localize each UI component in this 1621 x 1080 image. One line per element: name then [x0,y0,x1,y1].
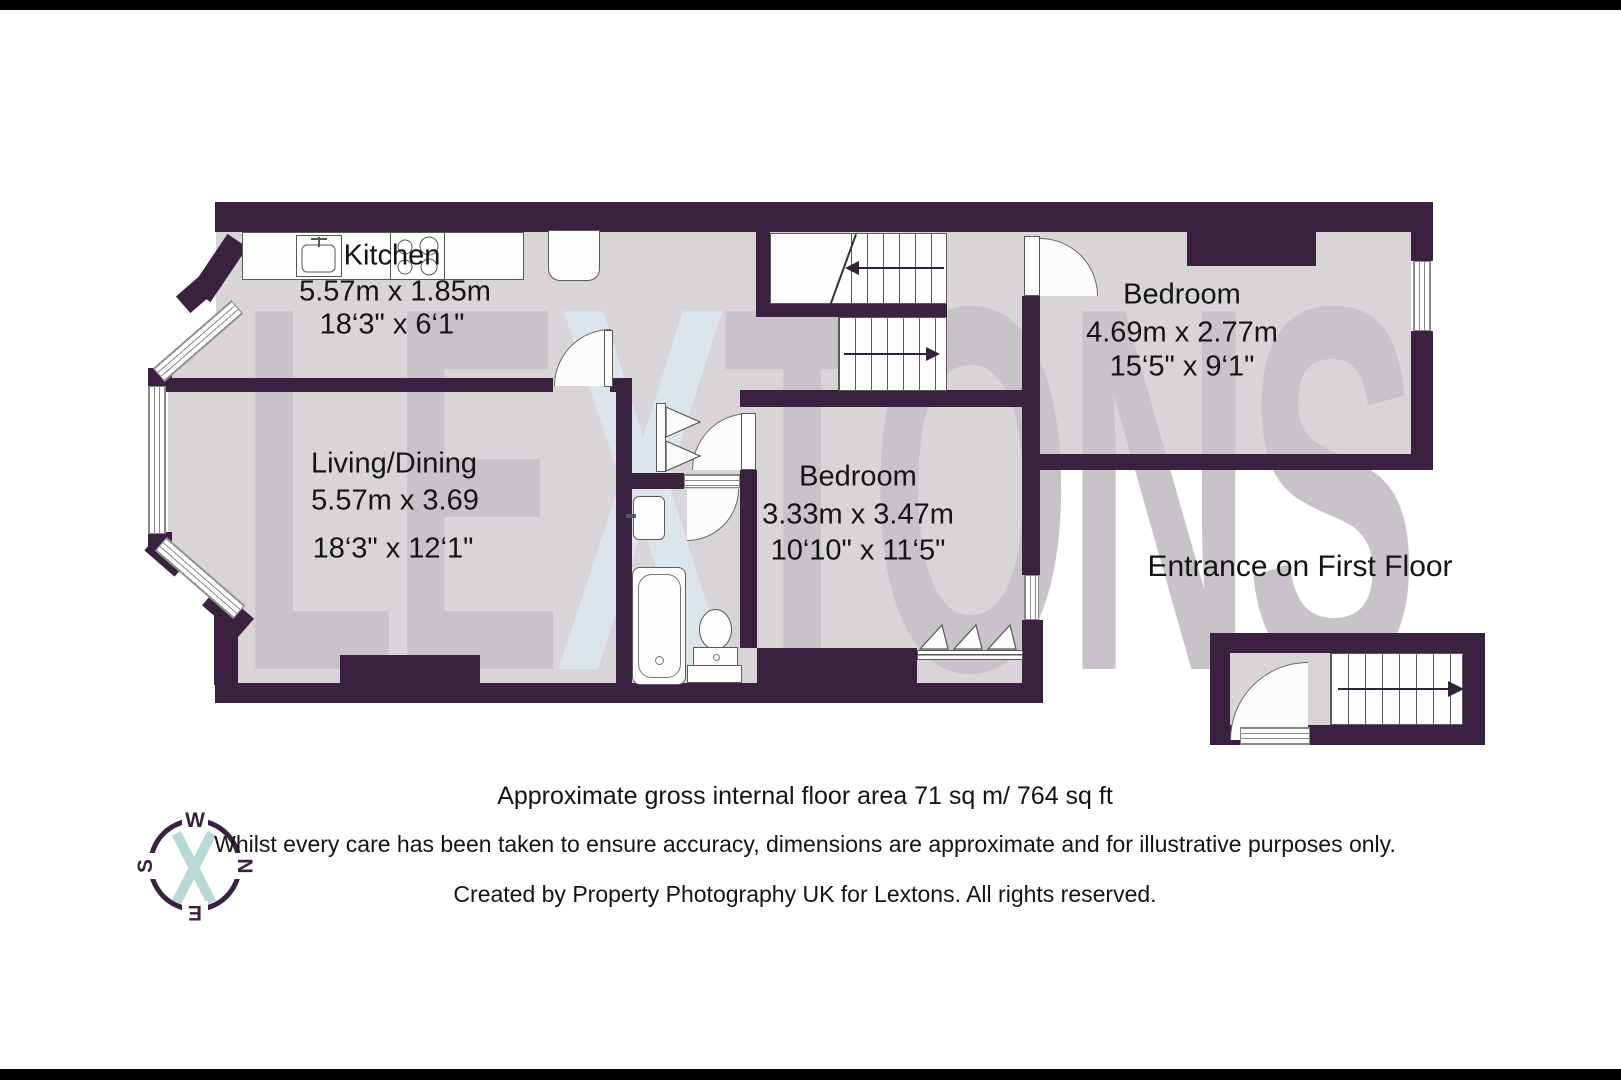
wall-right-bedroom-bottom [1022,454,1433,470]
compass-letter-w: W [185,809,205,833]
top-black-bar [0,0,1621,10]
cupboard-door-strip [656,403,666,472]
right-bedroom-door-leaf [1024,236,1040,296]
mid-bedroom-dims-metric: 3.33m x 3.47m [762,499,954,532]
boiler-icon [548,230,600,281]
right-bedroom-label: Bedroom [1123,279,1241,312]
wall-mid-bedroom-right-upper [1022,470,1040,575]
cupboard-bifold-icon [666,405,704,473]
wall-bottom-mid-bedroom [757,648,917,703]
toilet-tank-icon [693,647,738,666]
footer-credit-text: Created by Property Photography UK for L… [0,881,1610,908]
wall-bottom-left [215,683,757,703]
mid-bedroom-label: Bedroom [799,461,917,494]
bifold-doors-icon [918,622,1022,650]
living-label: Living/Dining [311,448,477,481]
footer-disclaimer-text: Whilst every care has been taken to ensu… [0,831,1610,858]
toilet-icon [699,609,732,650]
wall-right-lower [1411,331,1433,470]
wall-chimney-right-bedroom [1187,232,1316,266]
wall-bathroom-left [616,378,632,683]
entrance-note-label: Entrance on First Floor [1147,550,1452,584]
wall-chimney-living [340,655,480,683]
living-dims-imperial: 18‘3" x 12‘1" [313,533,474,566]
wall-mid-bedroom-left [740,470,757,648]
toilet-plinth [687,665,742,683]
kitchen-door-leaf [604,330,613,387]
bathroom-door-gap [684,474,740,488]
wall-mid-bedroom-right-corner [1022,620,1043,686]
wall-stairwell-left [756,232,770,305]
compass-letter-s: S [134,859,158,873]
living-dims-metric: 5.57m x 3.69 [311,485,479,518]
stairs-down-arrow-line [844,353,926,355]
wall-stairwell-mid [756,303,947,317]
entrance-arrow-line [1338,688,1450,690]
wall-bay-corner-bottom [214,612,238,685]
stairs-up-arrow-head [845,261,859,275]
stairs-up-arrow-line [858,267,944,269]
kitchen-dims-metric: 5.57m x 1.85m [299,276,491,309]
wall-bottom-right [917,683,1043,703]
wall-top [215,202,1433,232]
entrance-arrow-head [1448,681,1464,697]
kitchen-sink-icon [296,235,342,277]
entrance-door-threshold [1240,727,1310,745]
kitchen-dims-imperial: 18‘3" x 6‘1" [320,309,465,342]
bathroom-sink-icon [633,496,665,540]
kitchen-label: Kitchen [344,240,441,273]
wall-right-bedroom-left [1022,296,1040,454]
mid-bedroom-dims-imperial: 10‘10" x 11‘5" [771,535,946,568]
wall-hall-bathroom [629,473,684,489]
floorplan-page: { "plan": { "rooms": { "kitchen": {"name… [0,0,1621,1080]
right-bedroom-dims-imperial: 15‘5" x 9‘1" [1110,351,1255,384]
wall-right-upper [1411,202,1433,261]
bottom-black-bar [0,1069,1621,1080]
wall-kitchen-living-divider [166,378,553,392]
mid-bedroom-window-icon [1024,575,1039,620]
wall-hall-mid-bedroom-top [740,390,1022,407]
footer-area-text: Approximate gross internal floor area 71… [0,782,1610,811]
mid-bedroom-door-leaf [741,413,756,470]
right-bedroom-dims-metric: 4.69m x 2.77m [1086,317,1278,350]
bifold-sill [917,650,1023,660]
stairs-down-arrow-head [926,347,940,361]
bathroom-tap-icon [626,514,636,518]
compass-letter-n: N [232,858,256,873]
bay-window-left-icon [148,386,166,534]
right-bedroom-window-icon [1413,261,1431,331]
bath-icon [632,567,686,685]
